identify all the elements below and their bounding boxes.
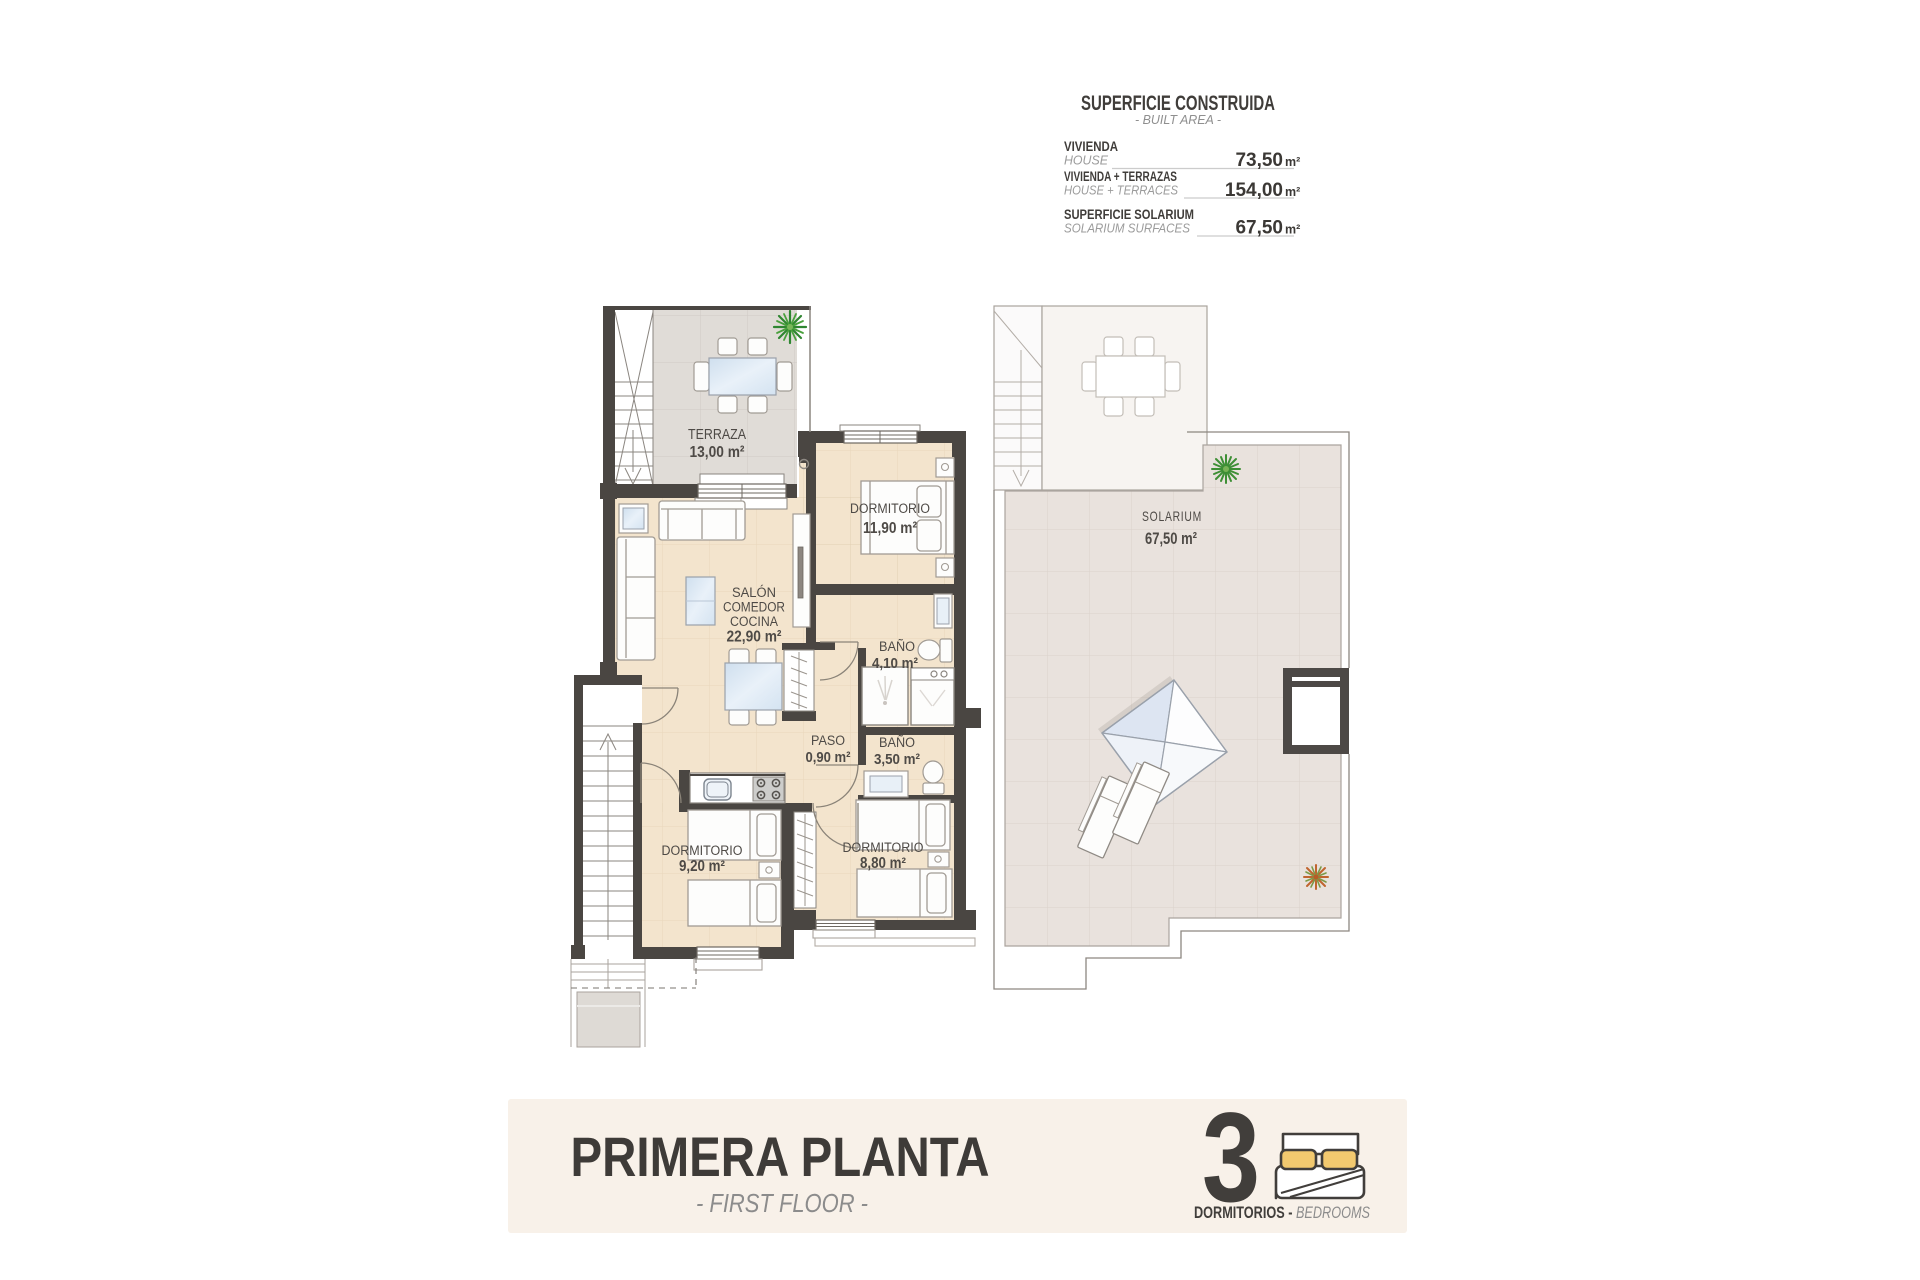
svg-text:154,00: 154,00 [1225,180,1283,201]
svg-text:- BUILT AREA -: - BUILT AREA - [1135,112,1222,127]
svg-text:HOUSE + TERRACES: HOUSE + TERRACES [1064,183,1178,198]
svg-text:m²: m² [1285,185,1300,199]
svg-text:BAÑO: BAÑO [879,735,915,750]
svg-text:COMEDOR: COMEDOR [723,600,785,615]
svg-text:PRIMERA PLANTA: PRIMERA PLANTA [571,1125,990,1188]
svg-text:DORMITORIO: DORMITORIO [662,843,743,858]
svg-text:SALÓN: SALÓN [732,585,776,600]
svg-text:73,50: 73,50 [1235,150,1283,171]
svg-text:m²: m² [1285,223,1300,237]
svg-text:DORMITORIO: DORMITORIO [843,840,924,855]
svg-text:- FIRST FLOOR -: - FIRST FLOOR - [696,1188,868,1218]
svg-text:m²: m² [1285,155,1300,169]
svg-text:11,90 m²: 11,90 m² [863,520,917,537]
svg-text:67,50: 67,50 [1235,218,1283,239]
svg-text:4,10 m²: 4,10 m² [872,655,918,672]
svg-text:DORMITORIOS - BEDROOMS: DORMITORIOS - BEDROOMS [1194,1204,1370,1222]
svg-text:BAÑO: BAÑO [879,639,915,654]
svg-text:8,80 m²: 8,80 m² [860,855,906,872]
svg-text:PASO: PASO [811,733,845,748]
svg-text:COCINA: COCINA [730,614,778,629]
svg-text:67,50 m²: 67,50 m² [1145,530,1197,548]
svg-text:SOLARIUM SURFACES: SOLARIUM SURFACES [1064,221,1190,236]
svg-text:HOUSE: HOUSE [1064,153,1108,168]
svg-text:9,20 m²: 9,20 m² [679,858,725,875]
svg-text:3,50 m²: 3,50 m² [874,751,920,768]
svg-text:TERRAZA: TERRAZA [688,427,746,443]
svg-text:SOLARIUM: SOLARIUM [1142,508,1202,524]
svg-text:22,90 m²: 22,90 m² [727,629,782,646]
svg-text:0,90 m²: 0,90 m² [806,749,851,766]
svg-text:13,00 m²: 13,00 m² [690,444,745,461]
svg-text:DORMITORIO: DORMITORIO [850,501,930,516]
